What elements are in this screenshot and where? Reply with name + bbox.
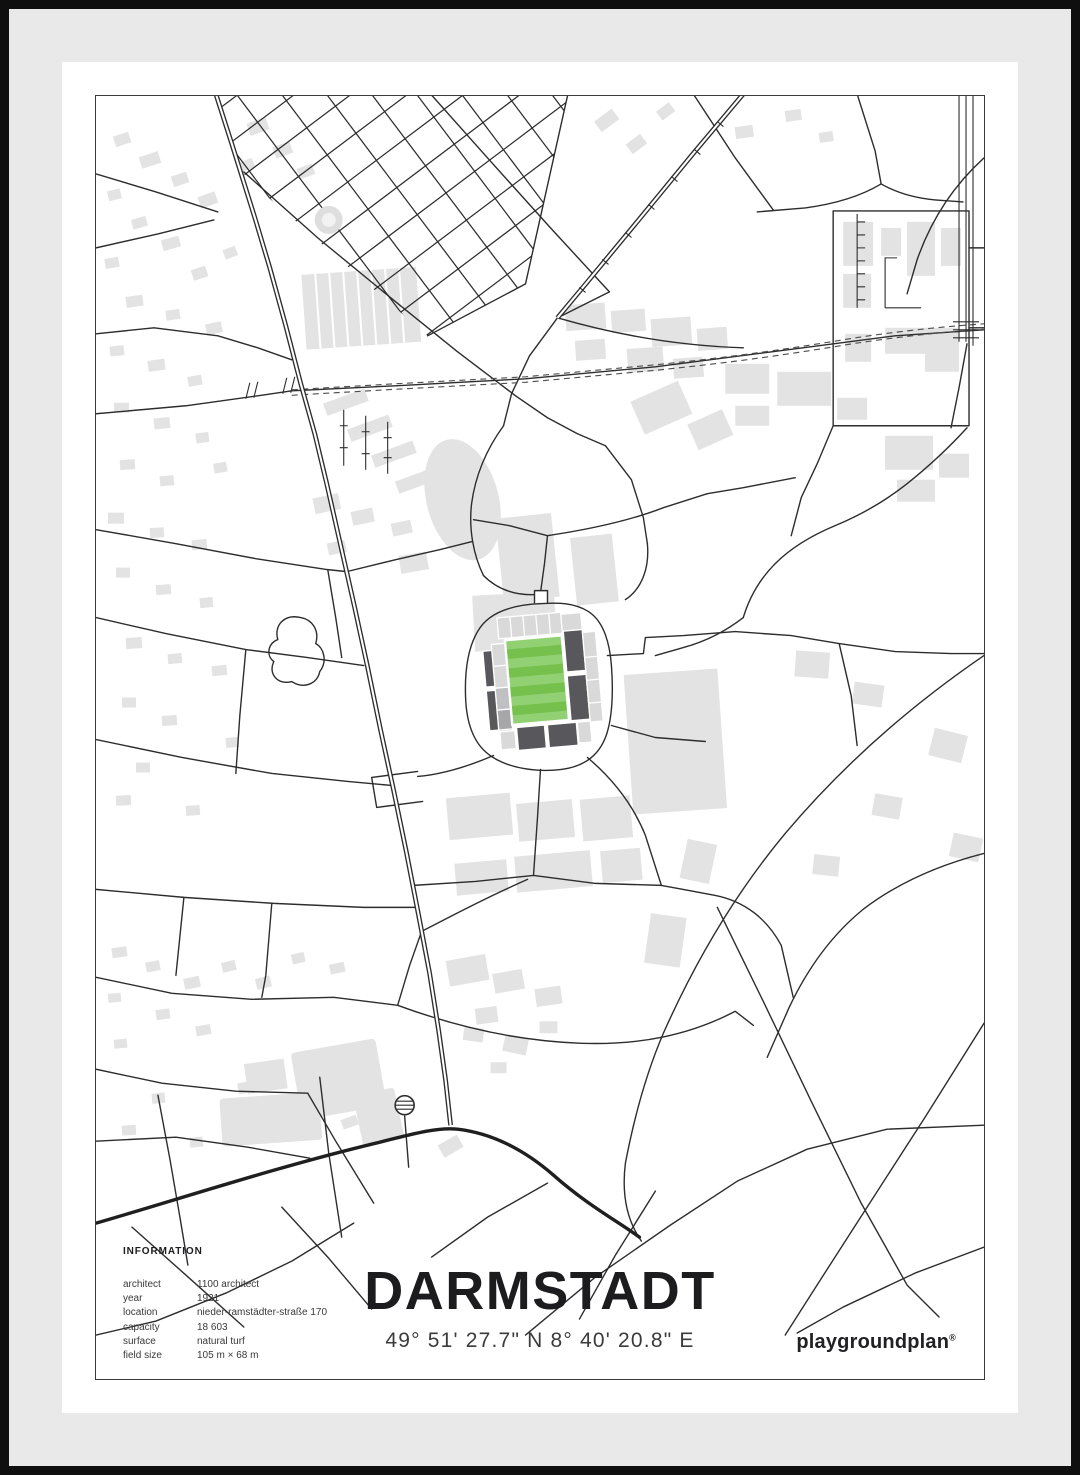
railway-vertical-right: [953, 96, 979, 346]
tram-line: [557, 96, 743, 318]
athletics-track: [412, 431, 514, 569]
frame-mat-outer: INFORMATION architect 1100 architect yea…: [9, 9, 1071, 1466]
frame-mat-inner: INFORMATION architect 1100 architect yea…: [62, 62, 1018, 1413]
city-map: [96, 96, 984, 1379]
poster-frame: INFORMATION architect 1100 architect yea…: [0, 0, 1080, 1475]
registered-mark: ®: [949, 1332, 956, 1342]
brand-logo: playgroundplan®: [796, 1331, 956, 1354]
info-heading: INFORMATION: [123, 1246, 393, 1257]
stadium-pitch: [505, 635, 569, 725]
highway: [96, 1129, 639, 1237]
pond: [269, 617, 324, 685]
poster-title: DARMSTADT: [96, 1260, 984, 1322]
poster: INFORMATION architect 1100 architect yea…: [95, 95, 985, 1380]
water-tower: [395, 1096, 414, 1115]
brand-text: playgroundplan: [796, 1331, 949, 1353]
